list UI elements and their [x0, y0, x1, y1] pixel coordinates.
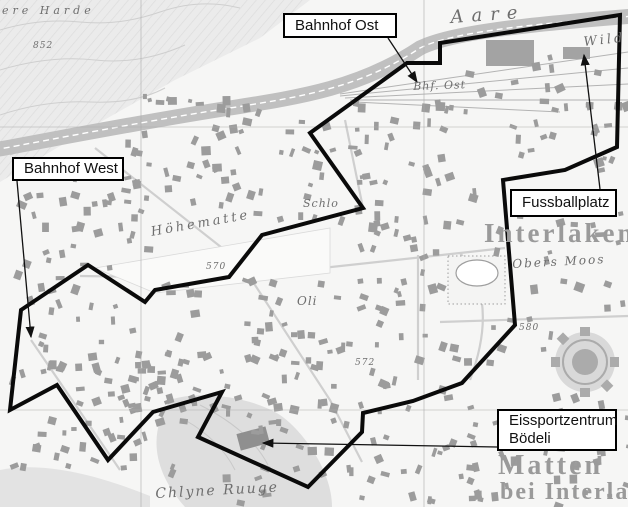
building	[449, 344, 459, 353]
building	[142, 130, 148, 138]
building	[540, 99, 550, 105]
building	[373, 220, 380, 227]
building	[399, 333, 404, 340]
building	[144, 195, 149, 201]
building	[545, 83, 550, 92]
building	[121, 465, 128, 470]
building	[158, 370, 167, 374]
building	[230, 169, 236, 175]
building	[571, 222, 578, 227]
building	[71, 427, 76, 431]
building	[111, 316, 115, 324]
building	[410, 244, 419, 252]
callout-eissportzentrum-boedeli: Eissportzentrum Bödeli	[497, 409, 617, 451]
building	[108, 391, 115, 397]
building	[346, 341, 353, 347]
building	[308, 332, 316, 339]
building	[99, 340, 104, 344]
building	[273, 403, 283, 412]
building	[394, 216, 399, 223]
building	[427, 118, 431, 127]
building	[306, 357, 312, 363]
building	[135, 362, 141, 369]
building	[257, 328, 264, 335]
building	[42, 223, 49, 232]
building	[75, 363, 82, 371]
building	[401, 469, 407, 474]
building	[308, 447, 318, 455]
building	[76, 386, 85, 391]
building	[564, 103, 568, 111]
building	[282, 375, 287, 384]
building	[365, 135, 369, 145]
building	[620, 300, 626, 307]
callout-label: Eissportzentrum	[499, 412, 615, 430]
building	[196, 102, 204, 106]
building	[223, 96, 231, 105]
building	[374, 122, 379, 131]
building	[59, 197, 68, 207]
building	[421, 103, 430, 113]
building	[530, 284, 538, 294]
building	[374, 211, 380, 220]
building	[142, 360, 151, 368]
building	[179, 418, 188, 424]
building	[143, 94, 147, 99]
building	[166, 290, 176, 295]
building	[223, 474, 231, 482]
building	[107, 265, 113, 271]
building	[357, 278, 363, 284]
building	[595, 232, 605, 237]
building	[324, 447, 334, 456]
building	[76, 317, 80, 322]
building	[516, 135, 521, 144]
building	[604, 304, 611, 311]
building	[125, 140, 131, 148]
building	[244, 321, 251, 326]
building	[131, 214, 138, 221]
building	[79, 442, 86, 452]
building	[32, 444, 41, 453]
building	[219, 202, 224, 209]
building	[423, 334, 428, 338]
callout-bahnhof-west: Bahnhof West	[12, 157, 124, 181]
building	[130, 453, 138, 461]
building	[554, 475, 561, 484]
callout-label: Bahnhof Ost	[285, 17, 395, 35]
building	[560, 278, 567, 284]
building	[433, 249, 440, 256]
building	[48, 307, 54, 315]
building	[570, 475, 578, 484]
building	[279, 150, 284, 155]
building	[242, 103, 250, 113]
building	[570, 462, 580, 471]
building	[286, 129, 295, 134]
building	[253, 211, 262, 217]
building	[375, 200, 384, 206]
callout-label: Fussballplatz	[512, 194, 615, 212]
building	[472, 188, 476, 196]
building	[138, 368, 146, 373]
building	[436, 102, 446, 111]
building	[491, 325, 496, 330]
building	[541, 347, 547, 352]
building	[291, 332, 297, 337]
callout-label: Bahnhof West	[14, 160, 122, 178]
building	[299, 120, 305, 124]
building	[197, 351, 207, 358]
callout-bahnhof-ost: Bahnhof Ost	[283, 13, 397, 38]
building	[127, 238, 133, 244]
building	[486, 359, 494, 366]
building	[276, 419, 281, 426]
building	[156, 100, 165, 105]
building	[437, 154, 446, 163]
sports-field	[448, 256, 505, 304]
building	[607, 494, 612, 498]
building	[317, 280, 325, 287]
building	[38, 432, 47, 438]
building	[92, 201, 98, 207]
building	[146, 162, 152, 167]
building	[190, 309, 200, 318]
building	[124, 200, 131, 205]
building	[464, 358, 472, 366]
building	[194, 290, 202, 297]
building	[355, 128, 360, 132]
building	[144, 246, 153, 253]
building	[419, 304, 425, 312]
building	[131, 377, 139, 381]
building	[473, 422, 479, 427]
building	[84, 207, 91, 216]
building	[62, 430, 66, 435]
building	[449, 105, 454, 111]
building	[226, 108, 231, 118]
building	[165, 185, 173, 192]
building	[201, 146, 211, 155]
callout-fussballplatz: Fussballplatz	[510, 189, 617, 217]
building	[511, 456, 521, 466]
building	[38, 283, 46, 292]
building	[531, 62, 541, 72]
building	[186, 289, 195, 298]
building	[357, 180, 362, 185]
building	[265, 322, 273, 332]
building	[459, 473, 464, 479]
building	[584, 490, 589, 495]
building	[291, 361, 300, 365]
building	[413, 121, 421, 129]
building	[319, 172, 324, 180]
building	[348, 145, 358, 150]
building	[443, 221, 451, 230]
building	[358, 103, 366, 112]
building	[346, 465, 351, 473]
building	[229, 124, 238, 134]
map-figure: ere Harde852AareWildBhf. OstHöhematte570…	[0, 0, 628, 507]
building	[297, 330, 305, 339]
building	[327, 349, 333, 354]
building	[298, 212, 303, 220]
callout-label-line2: Bödeli	[499, 430, 615, 448]
building	[317, 399, 322, 409]
building	[331, 384, 337, 389]
building	[375, 342, 379, 347]
building	[377, 278, 382, 284]
building	[463, 109, 467, 115]
building	[117, 435, 125, 440]
building	[359, 495, 365, 500]
building	[88, 352, 98, 361]
building	[36, 192, 43, 198]
building	[43, 345, 48, 353]
building	[491, 492, 499, 502]
building	[316, 361, 323, 370]
building	[221, 176, 229, 184]
building	[396, 300, 406, 306]
